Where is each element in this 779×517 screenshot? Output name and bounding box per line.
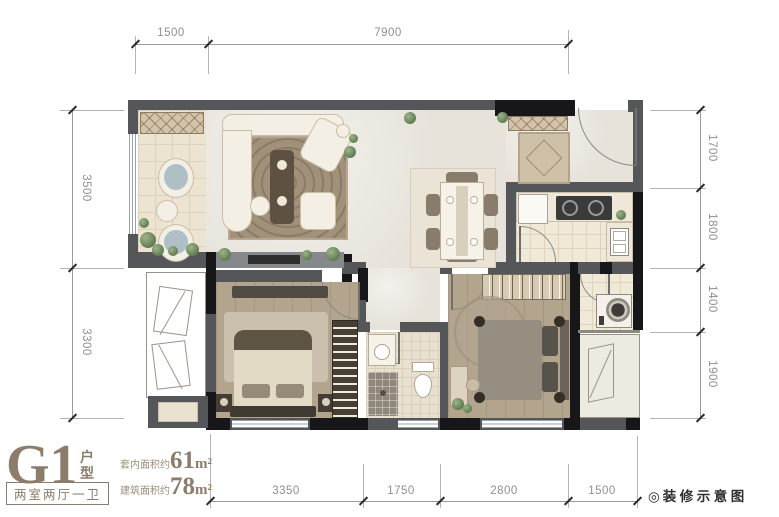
dim-label-top-2: 7900 xyxy=(363,27,413,39)
dim-line-top xyxy=(135,44,568,45)
bedroom2-headboard xyxy=(560,320,569,400)
bathroom-door-leaf xyxy=(398,332,400,364)
area-unit: m² xyxy=(195,482,212,498)
unit-code-suffix: 户型 xyxy=(80,449,96,481)
kitchen-sink-basin xyxy=(613,231,626,241)
bedroom2-bed-duvet xyxy=(478,320,542,400)
layout-tag: 两室两厅一卫 xyxy=(6,482,109,505)
dining-chair xyxy=(426,228,440,250)
dining-chair xyxy=(426,194,440,216)
sofa-chaise xyxy=(222,130,252,232)
dim-label-right-4: 1900 xyxy=(706,354,718,394)
wall-bottom-black-2 xyxy=(310,418,368,430)
target-circle-icon: ◎ xyxy=(648,489,660,504)
kitchen-door-leaf xyxy=(519,226,521,262)
plant xyxy=(302,250,312,260)
plant xyxy=(326,247,340,261)
dim-label-bottom-1: 3350 xyxy=(261,485,311,497)
wall-kitchen-left xyxy=(506,182,516,272)
plant xyxy=(218,248,231,261)
plant xyxy=(616,210,626,220)
wall-top xyxy=(135,100,495,110)
dim-label-left-1: 3500 xyxy=(80,168,92,208)
ottoman xyxy=(250,196,270,216)
wall-laundry-right xyxy=(633,262,643,330)
area-row-gross: 建筑面积约78m² xyxy=(120,474,212,499)
ac-unit-symbol xyxy=(151,340,190,390)
room-hallway xyxy=(366,268,440,330)
bedroom2-door-leaf xyxy=(451,274,453,310)
dining-plate xyxy=(470,196,478,204)
floorplan-canvas: 1500 7900 3500 3300 1700 1800 1400 1900 … xyxy=(0,0,779,517)
stove-burner xyxy=(562,200,578,216)
shower-drain xyxy=(380,390,386,396)
fridge xyxy=(518,194,548,224)
wall-master-left-mid xyxy=(206,314,216,392)
dim-label-bottom-2: 1750 xyxy=(376,485,426,497)
dim-line-bottom xyxy=(210,501,638,502)
wall-master-top xyxy=(216,270,322,282)
plant xyxy=(404,112,416,124)
window-balcony xyxy=(129,134,136,234)
plant xyxy=(497,112,508,123)
dining-plate xyxy=(446,196,454,204)
dining-chair xyxy=(484,228,498,250)
decoration-note-text: 装修示意图 xyxy=(663,489,748,504)
washer-panel xyxy=(599,316,604,325)
window-master-bedroom xyxy=(232,420,308,428)
kitchen-sink-basin xyxy=(613,244,626,253)
balcony-cabinet xyxy=(140,112,204,134)
entry-shoe-cabinet xyxy=(508,116,568,131)
dim-line-left xyxy=(72,110,73,418)
dining-table-runner xyxy=(456,186,468,256)
dining-plate xyxy=(470,238,478,246)
plant xyxy=(344,146,356,158)
bed-post xyxy=(474,392,485,403)
dim-label-right-2: 1800 xyxy=(706,207,718,247)
master-bed-headboard xyxy=(230,406,316,417)
lounge-armchair xyxy=(300,192,336,230)
plant xyxy=(349,134,358,143)
side-table-round xyxy=(336,124,350,138)
area-row-inner: 套内面积约61m² xyxy=(120,448,212,473)
wall-bottom-black-4 xyxy=(564,418,580,430)
stove-burner xyxy=(588,200,604,216)
master-wardrobe xyxy=(332,320,358,418)
equipment-bottom-inset xyxy=(158,402,198,422)
dim-label-right-3: 1400 xyxy=(706,279,718,319)
area-label: 建筑面积约 xyxy=(120,486,170,497)
wall-bottom-black-1 xyxy=(206,418,230,430)
wall-laundry-top-2 xyxy=(612,262,633,274)
area-value: 78 xyxy=(170,473,195,500)
dim-label-left-2: 3300 xyxy=(80,322,92,362)
washer-drum xyxy=(606,298,630,322)
wall-bottom-black-5 xyxy=(626,418,640,430)
dining-plate xyxy=(446,238,454,246)
bedroom2-bed-pillow xyxy=(542,362,558,392)
plant xyxy=(139,218,149,228)
plant xyxy=(152,244,164,256)
wall-bottom-black-3 xyxy=(440,418,480,430)
area-label: 套内面积约 xyxy=(120,460,170,471)
decoration-note: ◎装修示意图 xyxy=(648,485,748,505)
bathroom-basin xyxy=(374,344,390,360)
lounge-chair-cushion xyxy=(164,164,188,190)
wall-bedroom2-right xyxy=(570,262,580,420)
master-tv-console xyxy=(232,286,328,298)
dim-label-bottom-3: 2800 xyxy=(479,485,529,497)
dim-label-right-1: 1700 xyxy=(706,128,718,168)
master-bed-body xyxy=(234,350,312,408)
wall-balcony-left-top xyxy=(128,100,138,134)
nightstand-lamp xyxy=(220,398,228,406)
wall-bathroom-right xyxy=(440,322,448,420)
master-door-leaf xyxy=(358,282,360,320)
master-bed-pillow xyxy=(242,384,270,398)
bed-post xyxy=(474,316,485,327)
area-unit: m² xyxy=(195,456,212,472)
side-table xyxy=(156,200,178,222)
wall-master-left-top xyxy=(206,270,216,314)
bedroom2-bed-pillow xyxy=(542,326,558,356)
coffee-table-dish xyxy=(277,196,287,206)
dim-ext-bottom-5 xyxy=(637,436,638,508)
wall-bedroom2-top-2 xyxy=(488,262,570,274)
window-second-bedroom xyxy=(482,420,562,428)
dim-ext-top-3 xyxy=(568,30,569,74)
plant xyxy=(186,243,199,256)
bed-post xyxy=(554,316,565,327)
dining-chair xyxy=(484,194,498,216)
dim-label-bottom-4: 1500 xyxy=(577,485,627,497)
wall-laundry-bottom xyxy=(578,330,640,333)
wall-kitchen-right xyxy=(633,192,643,262)
plant xyxy=(168,246,178,256)
wall-bathroom-top-1 xyxy=(358,322,370,332)
plant xyxy=(463,404,472,413)
entry-door-leaf xyxy=(635,108,637,166)
wall-laundry-top-1 xyxy=(578,262,582,274)
window-bathroom xyxy=(398,420,438,428)
nightstand-lamp xyxy=(322,398,330,406)
bedroom2-desk-chair xyxy=(466,378,480,392)
dim-line-right xyxy=(700,110,701,418)
toilet-tank xyxy=(412,362,434,372)
master-bed-pillow xyxy=(276,384,304,398)
coffee-table-dish xyxy=(277,160,287,170)
area-value: 61 xyxy=(170,447,195,474)
tv-screen xyxy=(248,255,300,264)
dim-label-top-1: 1500 xyxy=(146,27,196,39)
bed-post xyxy=(554,392,565,403)
master-bed-foot-bench xyxy=(234,330,312,350)
